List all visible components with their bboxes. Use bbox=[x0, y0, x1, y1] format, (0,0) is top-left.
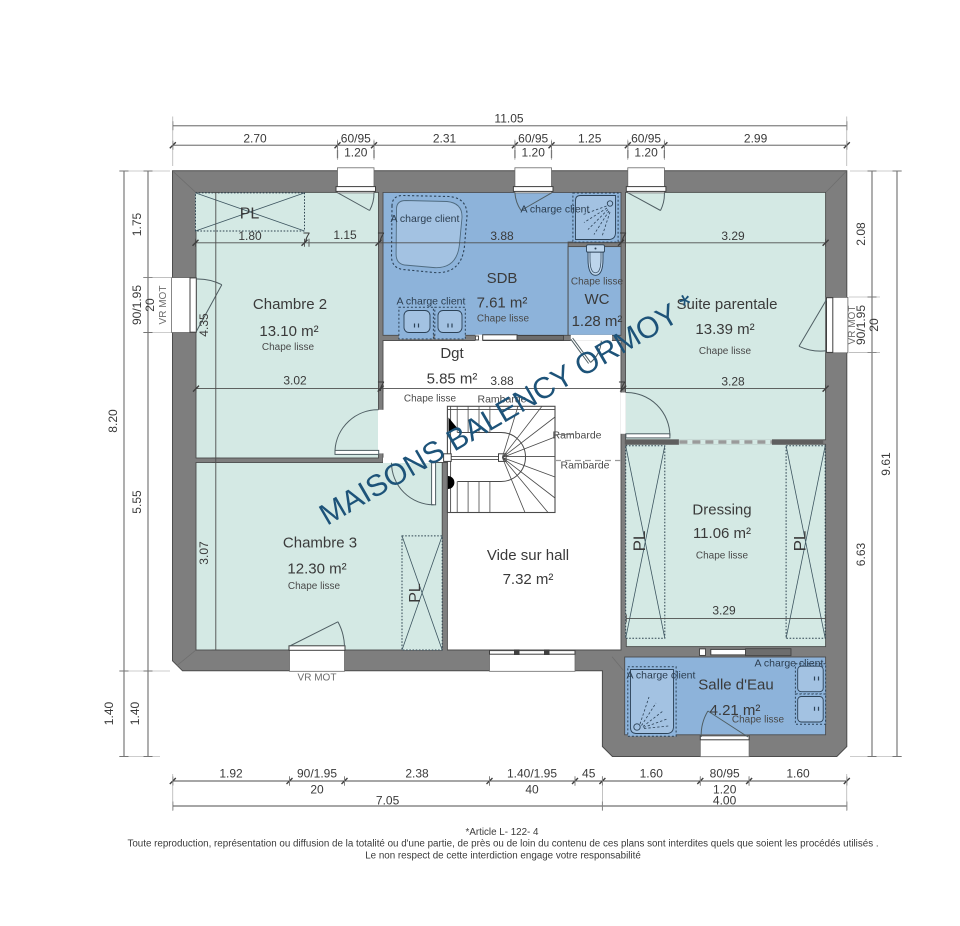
svg-text:Chambre 3: Chambre 3 bbox=[283, 535, 357, 552]
svg-text:3.02: 3.02 bbox=[283, 374, 307, 388]
svg-text:1.40/1.95: 1.40/1.95 bbox=[507, 767, 557, 781]
svg-text:7.32 m²: 7.32 m² bbox=[503, 571, 554, 588]
svg-text:8.20: 8.20 bbox=[106, 409, 120, 433]
svg-text:3.29: 3.29 bbox=[712, 604, 736, 618]
svg-text:2.08: 2.08 bbox=[854, 222, 868, 246]
svg-text:Dgt: Dgt bbox=[440, 345, 464, 362]
svg-text:A charge client: A charge client bbox=[397, 296, 466, 308]
svg-text:Chape lisse: Chape lisse bbox=[571, 277, 624, 288]
svg-text:45: 45 bbox=[582, 767, 596, 781]
svg-text:Chape lisse: Chape lisse bbox=[288, 581, 341, 592]
svg-text:A charge client: A charge client bbox=[521, 204, 590, 216]
svg-text:60/95: 60/95 bbox=[518, 132, 548, 146]
svg-text:90/1.95: 90/1.95 bbox=[297, 767, 337, 781]
svg-text:3.88: 3.88 bbox=[490, 229, 514, 243]
svg-text:7.05: 7.05 bbox=[376, 794, 400, 808]
svg-text:Rambarde: Rambarde bbox=[552, 430, 601, 442]
svg-text:A charge client: A charge client bbox=[627, 670, 696, 682]
svg-text:1.15: 1.15 bbox=[333, 228, 357, 242]
svg-text:Toute reproduction, représenta: Toute reproduction, représentation ou di… bbox=[127, 839, 878, 850]
svg-text:12.30 m²: 12.30 m² bbox=[287, 561, 346, 578]
svg-text:A charge client: A charge client bbox=[391, 213, 460, 225]
svg-text:3.28: 3.28 bbox=[721, 375, 745, 389]
svg-text:1.60: 1.60 bbox=[640, 767, 664, 781]
svg-text:13.10 m²: 13.10 m² bbox=[259, 323, 318, 340]
svg-text:Chape lisse: Chape lisse bbox=[262, 342, 315, 353]
svg-text:11.05: 11.05 bbox=[494, 111, 523, 125]
svg-text:60/95: 60/95 bbox=[631, 132, 661, 146]
svg-text:1.25: 1.25 bbox=[578, 132, 602, 146]
svg-text:4.00: 4.00 bbox=[713, 794, 737, 808]
svg-text:20: 20 bbox=[867, 318, 881, 332]
svg-text:3.29: 3.29 bbox=[721, 229, 745, 243]
svg-text:3.07: 3.07 bbox=[197, 541, 211, 565]
svg-text:13.39 m²: 13.39 m² bbox=[695, 321, 754, 338]
svg-text:1.20: 1.20 bbox=[522, 146, 546, 160]
svg-text:Chape lisse: Chape lisse bbox=[404, 393, 457, 404]
svg-text:VR MOT: VR MOT bbox=[847, 306, 858, 345]
svg-text:20: 20 bbox=[143, 298, 157, 312]
svg-text:4.35: 4.35 bbox=[197, 313, 211, 337]
svg-text:Le non respect de cette interd: Le non respect de cette interdiction eng… bbox=[365, 851, 641, 862]
svg-text:1.20: 1.20 bbox=[344, 146, 368, 160]
svg-text:11.06 m²: 11.06 m² bbox=[693, 525, 751, 542]
svg-text:Chambre 2: Chambre 2 bbox=[253, 296, 327, 313]
svg-text:1.60: 1.60 bbox=[786, 767, 810, 781]
svg-text:PL: PL bbox=[630, 531, 649, 552]
svg-text:7: 7 bbox=[377, 230, 385, 245]
svg-text:PL: PL bbox=[407, 583, 424, 603]
svg-text:VR MOT: VR MOT bbox=[158, 286, 169, 325]
svg-text:80/95: 80/95 bbox=[710, 767, 740, 781]
svg-text:1.40: 1.40 bbox=[102, 701, 116, 725]
svg-text:6.63: 6.63 bbox=[854, 542, 868, 566]
svg-text:*Article L- 122- 4: *Article L- 122- 4 bbox=[466, 827, 540, 838]
svg-text:Rambarde: Rambarde bbox=[560, 460, 609, 472]
svg-text:Vide sur hall: Vide sur hall bbox=[487, 547, 569, 564]
svg-text:Chape lisse: Chape lisse bbox=[699, 346, 752, 357]
svg-text:2.31: 2.31 bbox=[433, 132, 457, 146]
svg-text:60/95: 60/95 bbox=[341, 132, 371, 146]
svg-text:7: 7 bbox=[303, 230, 311, 245]
svg-text:3.88: 3.88 bbox=[490, 374, 514, 388]
svg-text:90/1.95: 90/1.95 bbox=[130, 285, 144, 325]
svg-text:Salle d'Eau: Salle d'Eau bbox=[698, 677, 773, 694]
svg-text:WC: WC bbox=[585, 291, 610, 308]
svg-text:PL: PL bbox=[791, 531, 810, 552]
svg-text:VR MOT: VR MOT bbox=[298, 673, 337, 684]
svg-text:SDB: SDB bbox=[487, 270, 518, 287]
svg-text:40: 40 bbox=[525, 783, 539, 797]
svg-text:20: 20 bbox=[310, 783, 324, 797]
svg-text:7: 7 bbox=[619, 230, 627, 245]
svg-text:7: 7 bbox=[377, 379, 385, 394]
svg-text:5.55: 5.55 bbox=[130, 490, 144, 514]
svg-text:PL: PL bbox=[240, 206, 260, 223]
svg-text:Chape lisse: Chape lisse bbox=[696, 551, 749, 562]
svg-text:1.40: 1.40 bbox=[128, 701, 142, 725]
svg-text:1.80: 1.80 bbox=[238, 229, 262, 243]
svg-text:1.92: 1.92 bbox=[219, 767, 243, 781]
svg-text:5.85 m²: 5.85 m² bbox=[427, 371, 478, 388]
svg-text:7: 7 bbox=[618, 379, 626, 394]
svg-text:2.70: 2.70 bbox=[243, 132, 267, 146]
svg-text:7.61 m²: 7.61 m² bbox=[477, 295, 528, 312]
svg-text:2.99: 2.99 bbox=[744, 132, 768, 146]
svg-text:9.61: 9.61 bbox=[879, 452, 893, 476]
svg-text:1.20: 1.20 bbox=[634, 146, 658, 160]
svg-text:Chape lisse: Chape lisse bbox=[477, 314, 530, 325]
svg-text:2.38: 2.38 bbox=[405, 767, 429, 781]
svg-text:A charge client: A charge client bbox=[755, 658, 824, 670]
svg-text:Chape lisse: Chape lisse bbox=[732, 715, 785, 726]
svg-text:1.75: 1.75 bbox=[130, 212, 144, 236]
svg-text:Dressing: Dressing bbox=[692, 502, 751, 519]
